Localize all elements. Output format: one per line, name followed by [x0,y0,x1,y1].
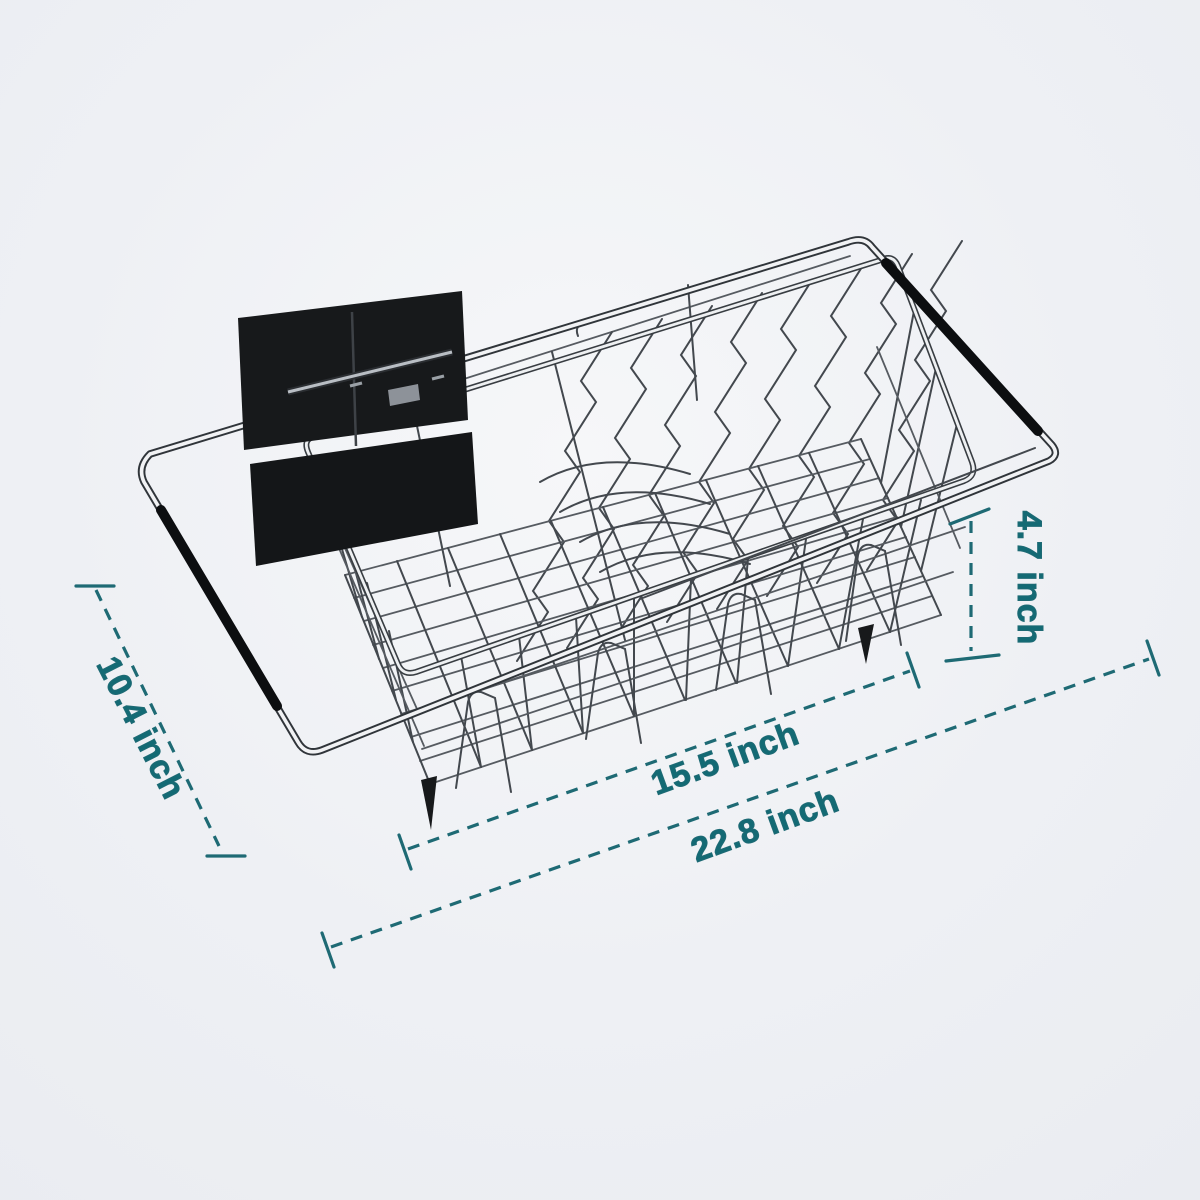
dimension-depth: 4.7 inch [946,509,1048,661]
dish-rack-diagram: 10.4 inch 15.5 inch 22.8 inch 4.7 inch [0,0,1200,1200]
dimension-label-width: 10.4 inch [89,651,193,806]
dimension-tick [946,655,999,661]
dish-rack-illustration [142,240,1056,830]
dimension-label-depth: 4.7 inch [1010,511,1048,646]
caddy-front-panel [250,432,478,566]
dimension-width: 10.4 inch [76,586,245,856]
dimension-annotations: 10.4 inch 15.5 inch 22.8 inch 4.7 inch [76,509,1159,967]
right-foot [858,624,874,664]
product-image: 10.4 inch 15.5 inch 22.8 inch 4.7 inch [0,0,1200,1200]
dimension-tick [322,933,334,967]
dimension-tick [1147,641,1159,675]
dimension-label-basket-length: 15.5 inch [646,714,804,803]
right-handle-grip [886,263,1038,431]
dimension-tick [399,835,411,869]
dimension-line [408,671,910,849]
left-foot [421,776,437,830]
dimension-label-extended-length: 22.8 inch [686,781,844,870]
bowl-divider-wires [540,462,750,572]
inner-near-rail [640,448,1035,599]
utensil-caddy [238,291,478,566]
dimension-extended-length: 22.8 inch [322,641,1159,967]
